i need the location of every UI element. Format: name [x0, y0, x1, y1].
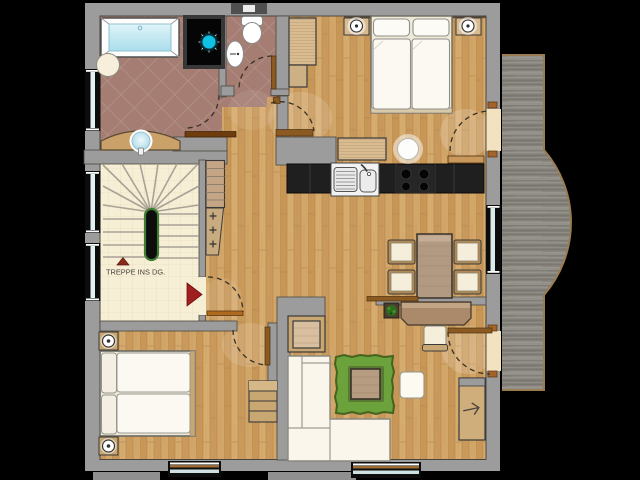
svg-text:TREPPE INS DG.: TREPPE INS DG.: [106, 268, 165, 277]
